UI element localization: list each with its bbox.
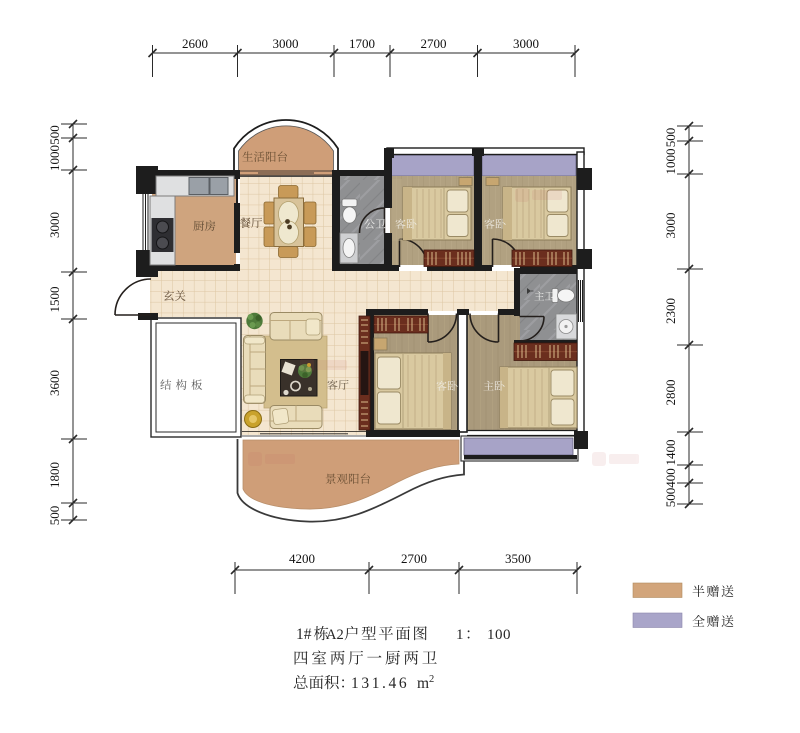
svg-text:1000: 1000	[47, 145, 62, 171]
svg-text:500: 500	[663, 128, 678, 148]
svg-text:2700: 2700	[401, 551, 427, 566]
svg-text:500: 500	[663, 488, 678, 508]
svg-text:m: m	[417, 675, 429, 692]
svg-text:3500: 3500	[505, 551, 531, 566]
svg-text:1400: 1400	[663, 440, 678, 466]
svg-text:2700: 2700	[421, 36, 447, 51]
svg-text:1#: 1#	[296, 626, 312, 643]
svg-text:500: 500	[47, 506, 62, 526]
svg-text:1800: 1800	[47, 462, 62, 488]
svg-text:1: 1	[456, 627, 464, 643]
svg-text:2800: 2800	[663, 380, 678, 406]
svg-text:2: 2	[429, 674, 434, 685]
svg-text:A2: A2	[326, 627, 344, 643]
svg-text:1700: 1700	[349, 36, 375, 51]
svg-text:1000: 1000	[663, 149, 678, 175]
svg-text:3000: 3000	[513, 36, 539, 51]
svg-text:3000: 3000	[663, 213, 678, 239]
svg-text:2600: 2600	[182, 36, 208, 51]
svg-text:4200: 4200	[289, 551, 315, 566]
svg-text:131.46: 131.46	[351, 675, 409, 692]
svg-text:500: 500	[47, 125, 62, 145]
svg-text:1500: 1500	[47, 287, 62, 313]
svg-text:100: 100	[487, 627, 511, 643]
svg-text:3000: 3000	[273, 36, 299, 51]
svg-text:3000: 3000	[47, 212, 62, 238]
svg-text:3600: 3600	[47, 370, 62, 396]
svg-text:400: 400	[663, 468, 678, 488]
svg-text:2300: 2300	[663, 298, 678, 324]
